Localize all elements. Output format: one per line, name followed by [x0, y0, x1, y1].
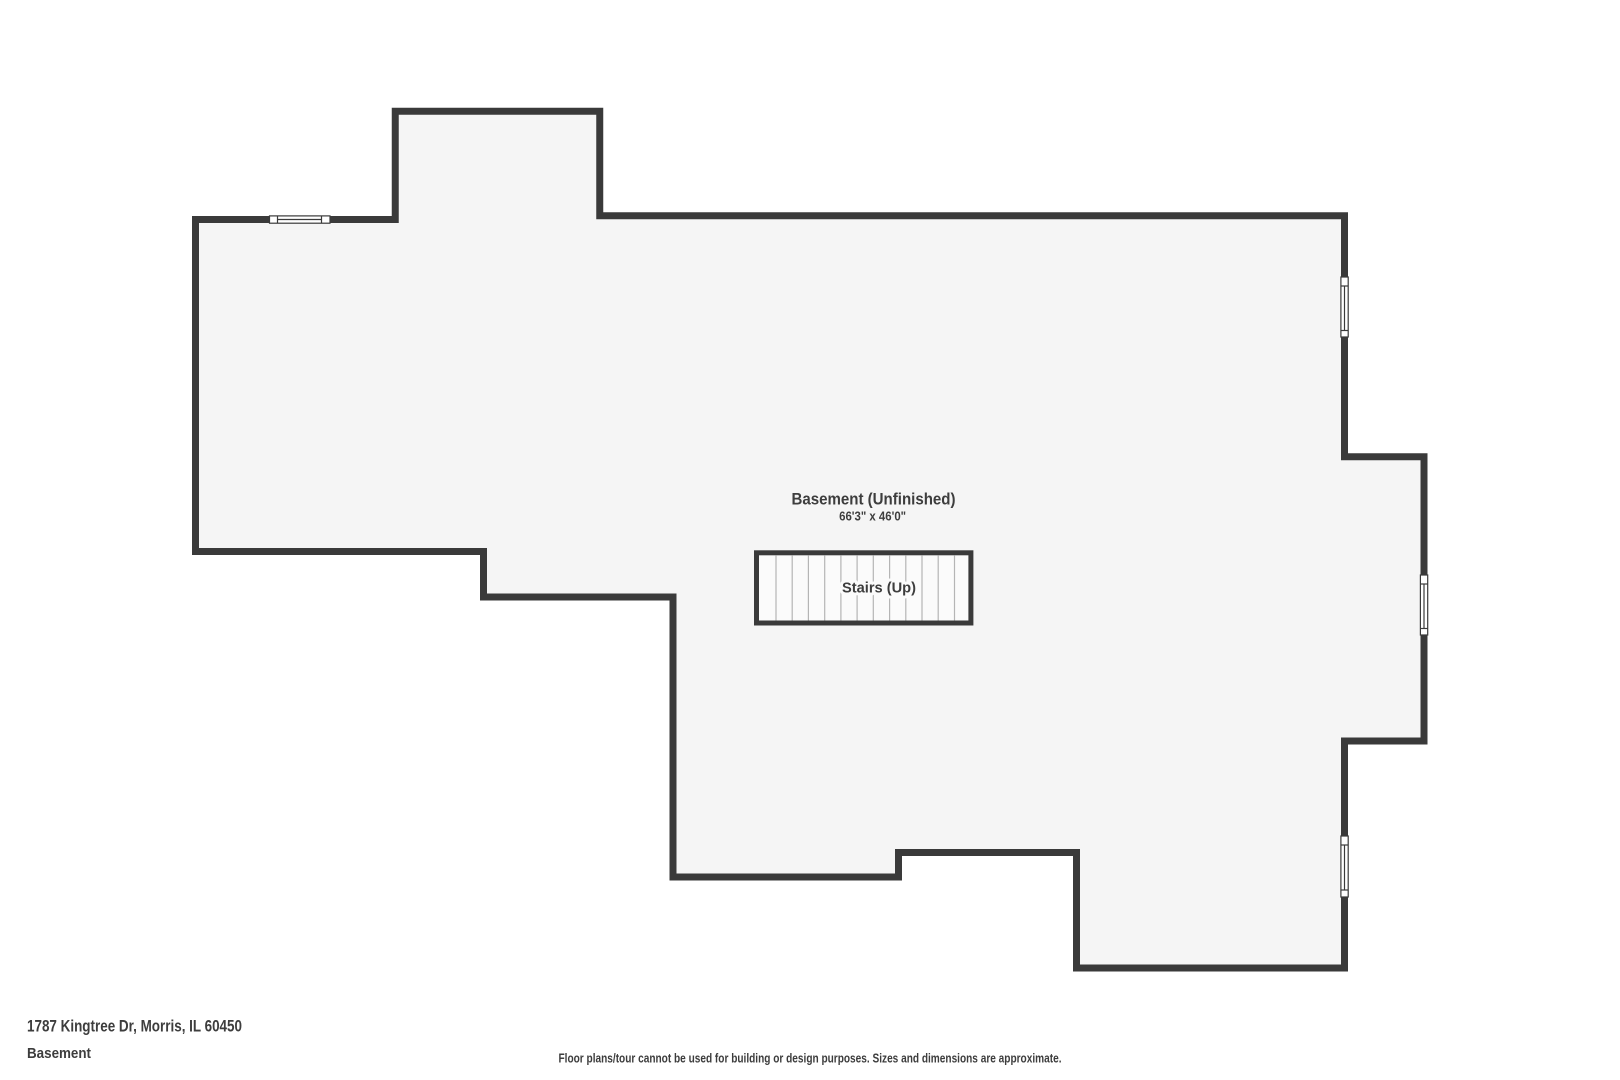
svg-text:1787 Kingtree Dr, Morris, IL 6: 1787 Kingtree Dr, Morris, IL 60450 — [27, 1017, 242, 1036]
svg-text:Stairs (Up): Stairs (Up) — [842, 580, 916, 597]
svg-text:Floor plans/tour cannot be use: Floor plans/tour cannot be used for buil… — [559, 1051, 1062, 1066]
svg-text:66'3" x 46'0": 66'3" x 46'0" — [839, 510, 906, 524]
svg-text:Basement: Basement — [27, 1045, 91, 1062]
svg-text:Basement (Unfinished): Basement (Unfinished) — [792, 491, 956, 509]
